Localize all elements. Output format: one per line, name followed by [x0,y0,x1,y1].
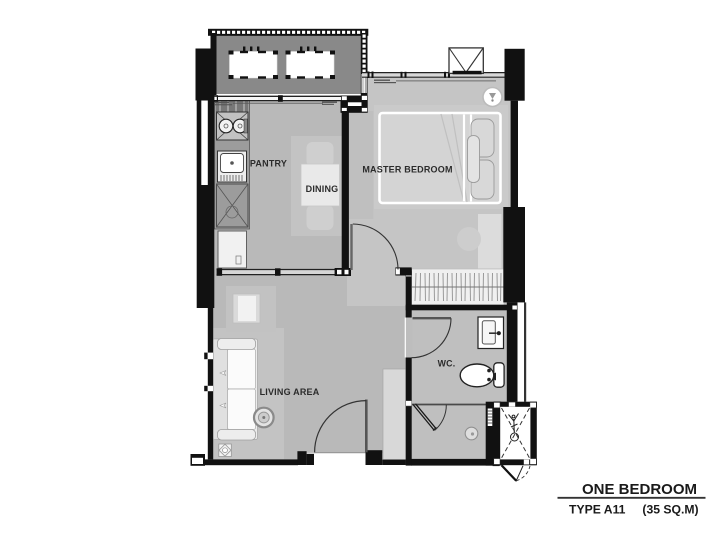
svg-text:LIVING AREA: LIVING AREA [260,387,320,397]
svg-text:PANTRY: PANTRY [250,159,287,169]
svg-text:DINING: DINING [306,184,339,194]
svg-text:ONE BEDROOM: ONE BEDROOM [582,481,697,498]
svg-text:WC.: WC. [438,359,456,369]
svg-text:MASTER BEDROOM: MASTER BEDROOM [362,165,452,175]
svg-text:TYPE A11 (35 SQ.M): TYPE A11 (35 SQ.M) [569,503,699,517]
